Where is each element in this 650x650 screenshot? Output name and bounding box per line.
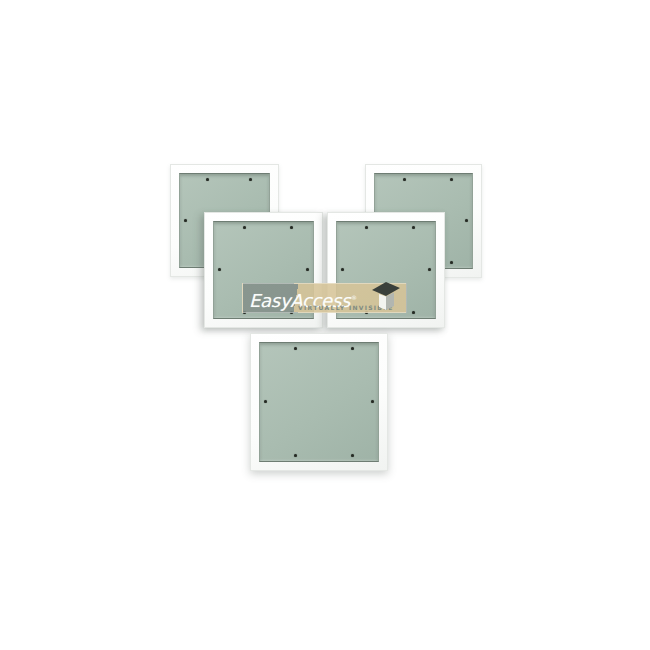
screw-icon — [206, 178, 209, 181]
registered-mark: ® — [351, 294, 357, 301]
screw-icon — [306, 268, 309, 271]
panel-door — [259, 342, 379, 462]
screw-icon — [351, 454, 354, 457]
screw-icon — [371, 400, 374, 403]
screw-icon — [243, 226, 246, 229]
screw-icon — [218, 268, 221, 271]
screw-icon — [290, 226, 293, 229]
screw-icon — [428, 268, 431, 271]
screw-icon — [450, 178, 453, 181]
screw-icon — [412, 311, 415, 314]
easyaccess-watermark: EasyAccess® VIRTUALLY INVISIBLE — [242, 283, 407, 313]
screw-icon — [351, 347, 354, 350]
panel-collage: EasyAccess® VIRTUALLY INVISIBLE — [0, 0, 650, 650]
screw-icon — [412, 226, 415, 229]
screw-icon — [294, 347, 297, 350]
screw-icon — [294, 454, 297, 457]
access-panel-front-bottom — [250, 333, 388, 471]
screw-icon — [249, 178, 252, 181]
screw-icon — [450, 261, 453, 264]
brand-easy: Easy — [249, 290, 290, 311]
screw-icon — [403, 178, 406, 181]
screw-icon — [365, 226, 368, 229]
screw-icon — [184, 219, 187, 222]
screw-icon — [465, 219, 468, 222]
screw-icon — [341, 268, 344, 271]
screw-icon — [264, 400, 267, 403]
open-lid-box-icon — [371, 279, 401, 311]
